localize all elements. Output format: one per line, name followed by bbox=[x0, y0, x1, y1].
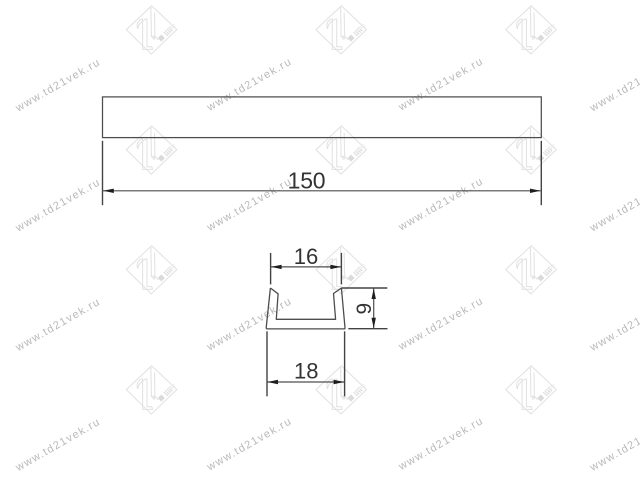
svg-text:16: 16 bbox=[294, 244, 318, 269]
svg-text:150: 150 bbox=[288, 167, 326, 193]
svg-text:9: 9 bbox=[353, 303, 376, 315]
svg-text:18: 18 bbox=[294, 359, 318, 384]
